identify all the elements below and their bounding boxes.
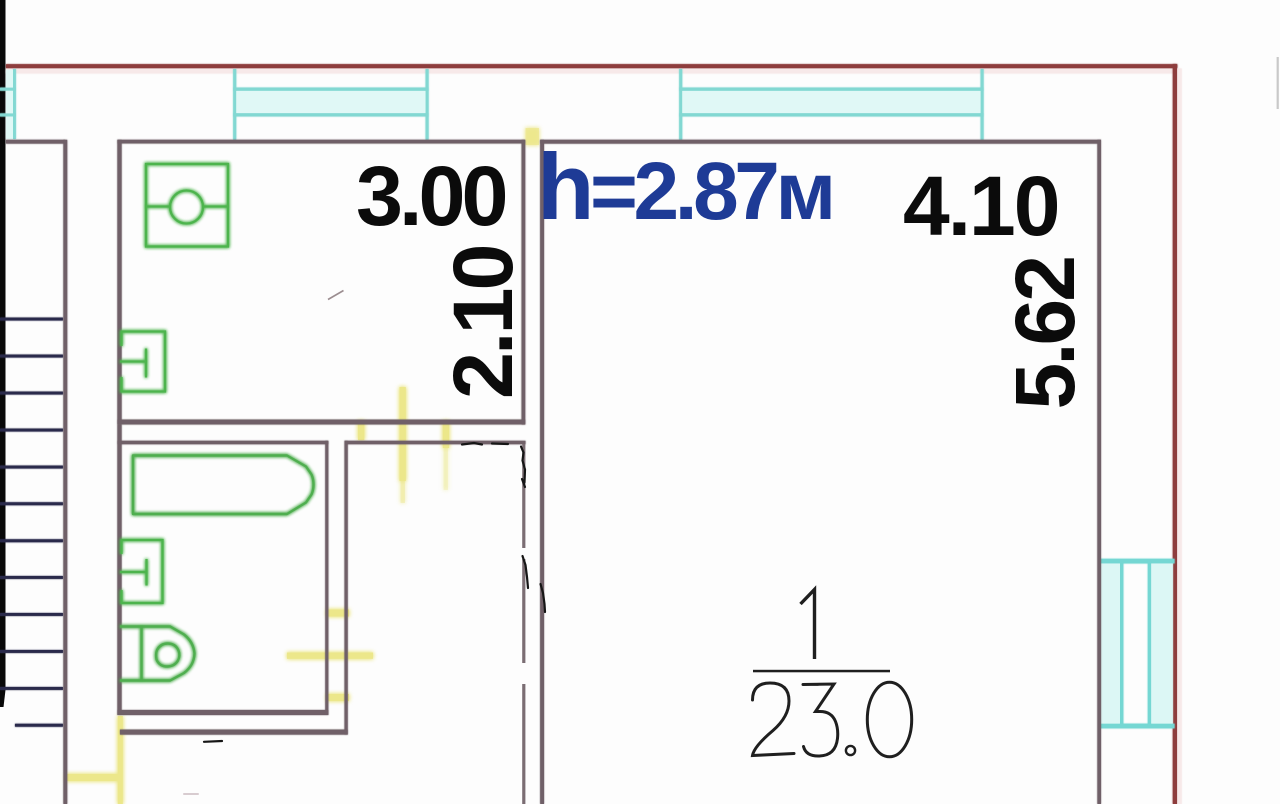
svg-text:3.00: 3.00 xyxy=(356,149,505,243)
svg-text:h=2.87м: h=2.87м xyxy=(537,134,832,239)
svg-text:4.10: 4.10 xyxy=(903,159,1059,253)
svg-text:5.62: 5.62 xyxy=(998,258,1092,410)
svg-text:2.10: 2.10 xyxy=(436,247,530,399)
